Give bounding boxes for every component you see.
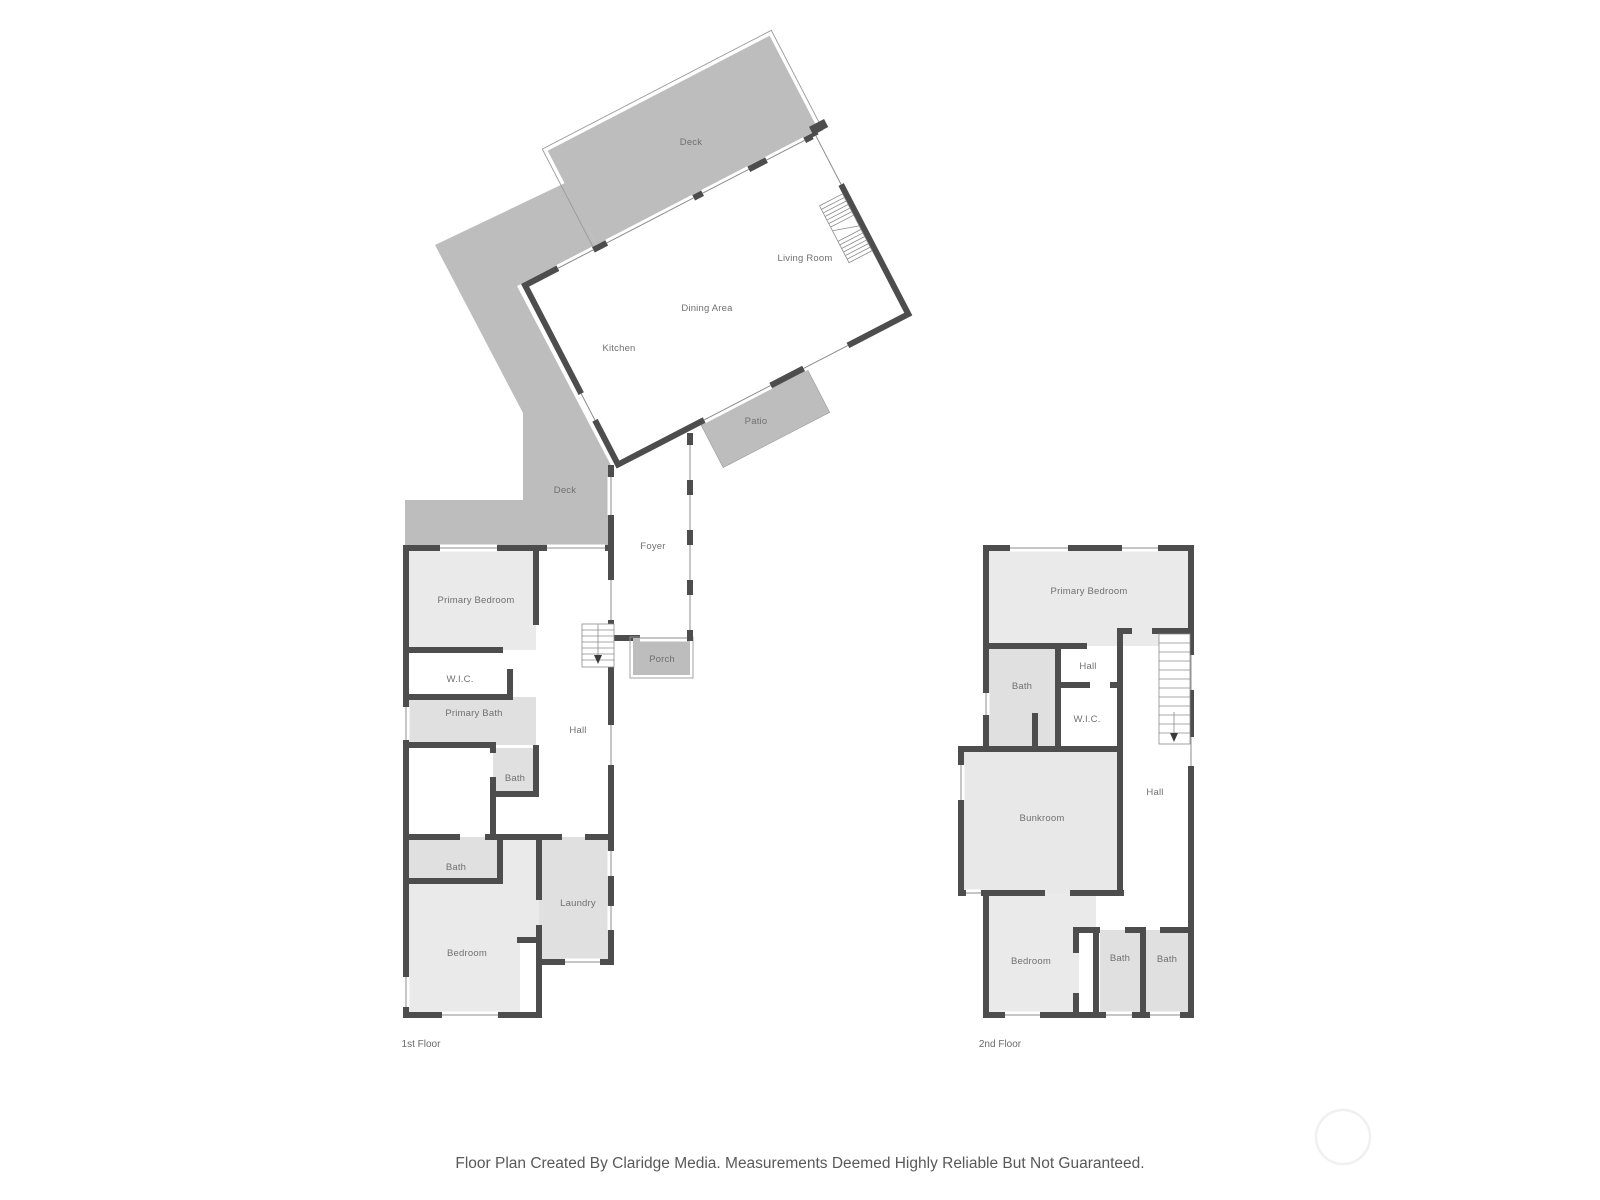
f2-bath-left-area xyxy=(1100,930,1143,1015)
staircase-second-floor xyxy=(1159,634,1190,744)
label-f1-primary-bath: Primary Bath xyxy=(445,708,502,719)
label-second-floor: 2nd Floor xyxy=(979,1039,1022,1050)
label-f2-primary-bedroom: Primary Bedroom xyxy=(1051,586,1128,597)
f1-bedroom-closet xyxy=(520,943,537,1012)
f2-bedroom-closet xyxy=(1079,933,1093,1012)
floor-plan-page: Deck Living Room Dining Area Kitchen Pat… xyxy=(0,0,1600,1200)
f2-bath-area xyxy=(986,646,1058,749)
f2-primary-bedroom-area-right xyxy=(1120,548,1191,634)
label-f1-bath-lower: Bath xyxy=(446,862,466,873)
label-foyer: Foyer xyxy=(640,541,665,552)
staircase-first-floor xyxy=(582,624,614,667)
label-deck-lower: Deck xyxy=(554,485,576,496)
f2-bath-right-area xyxy=(1146,930,1191,1015)
second-floor-plan xyxy=(958,545,1195,1019)
label-f2-bunkroom: Bunkroom xyxy=(1020,813,1065,824)
label-f2-bedroom: Bedroom xyxy=(1011,956,1051,967)
label-f2-bath-left: Bath xyxy=(1110,953,1130,964)
label-f1-wic: W.I.C. xyxy=(446,674,473,685)
label-f2-hall-main: Hall xyxy=(1146,787,1163,798)
label-first-floor: 1st Floor xyxy=(402,1039,442,1050)
f1-bath-upper-area xyxy=(493,748,536,794)
f1-bath-lower-area xyxy=(406,837,500,881)
label-f1-primary-bedroom: Primary Bedroom xyxy=(438,595,515,606)
label-patio: Patio xyxy=(745,416,768,427)
label-dining-area: Dining Area xyxy=(681,303,733,314)
label-living-room: Living Room xyxy=(777,253,832,264)
first-floor-plan xyxy=(403,465,615,1019)
label-porch: Porch xyxy=(649,654,675,665)
label-deck-upper: Deck xyxy=(680,137,702,148)
caption-text: Floor Plan Created By Claridge Media. Me… xyxy=(455,1155,1144,1172)
label-f1-bedroom: Bedroom xyxy=(447,948,487,959)
label-f2-bath: Bath xyxy=(1012,681,1032,692)
watermark-circle xyxy=(1316,1110,1370,1164)
label-f1-laundry: Laundry xyxy=(560,898,596,909)
label-f1-bath-upper: Bath xyxy=(505,773,525,784)
floor-plan-canvas: Deck Living Room Dining Area Kitchen Pat… xyxy=(0,0,1600,1200)
label-kitchen: Kitchen xyxy=(602,343,635,354)
label-f2-wic: W.I.C. xyxy=(1073,714,1100,725)
label-f2-hall-small: Hall xyxy=(1079,661,1096,672)
label-f1-hall: Hall xyxy=(569,725,586,736)
label-f2-bath-right: Bath xyxy=(1157,954,1177,965)
f1-primary-bath-area xyxy=(406,697,536,745)
